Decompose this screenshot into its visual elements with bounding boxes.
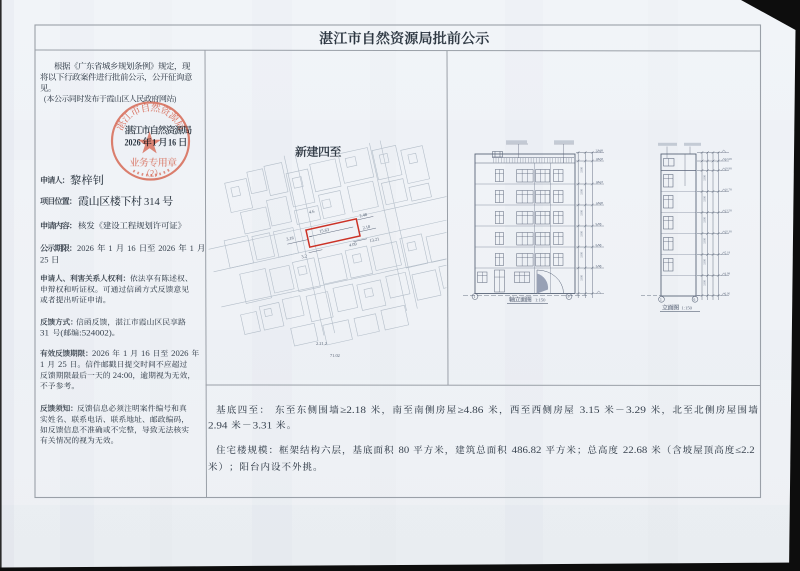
svg-text:(: (: [44, 95, 47, 104]
svg-text:2026: 2026: [171, 348, 188, 358]
svg-text:16.18: 16.18: [596, 180, 604, 184]
svg-text:22.68: 22.68: [623, 446, 648, 456]
svg-text:6: 6: [694, 298, 696, 302]
svg-text::524002): :524002): [79, 327, 112, 337]
svg-text:2: 2: [150, 169, 154, 179]
svg-text:9.78: 9.78: [596, 222, 602, 226]
svg-text:3.31: 3.31: [253, 421, 273, 431]
svg-text:22.68: 22.68: [596, 149, 604, 153]
svg-text:22.68: 22.68: [725, 157, 733, 161]
svg-text:2026: 2026: [158, 243, 175, 253]
svg-text:3300: 3300: [580, 252, 584, 259]
svg-text:3300: 3300: [703, 175, 707, 182]
svg-text:31: 31: [40, 327, 49, 337]
svg-text:0.00: 0.00: [725, 292, 731, 296]
svg-text:16: 16: [127, 243, 136, 253]
svg-text:16: 16: [168, 138, 176, 149]
svg-text:7.18: 7.18: [725, 251, 731, 255]
svg-text:3.29: 3.29: [626, 406, 646, 416]
svg-text:3300: 3300: [703, 280, 707, 287]
svg-text:3300: 3300: [580, 275, 584, 282]
svg-text:1: 1: [190, 243, 194, 253]
svg-text:1: 1: [123, 348, 127, 358]
svg-text:10.38: 10.38: [725, 230, 733, 234]
svg-text:(: (: [60, 327, 63, 337]
svg-text:3300: 3300: [703, 259, 707, 266]
svg-text:9: 9: [568, 295, 570, 299]
svg-text:): ): [174, 95, 177, 104]
svg-text:71.02: 71.02: [330, 353, 340, 358]
svg-text:16: 16: [141, 348, 150, 358]
svg-text:3.38: 3.38: [596, 264, 602, 268]
svg-text:24:00: 24:00: [113, 370, 133, 380]
svg-text:2.94: 2.94: [208, 421, 228, 431]
svg-text:6.58: 6.58: [596, 243, 602, 247]
svg-text:1:150: 1:150: [682, 306, 693, 311]
svg-text:19.98: 19.98: [725, 167, 733, 171]
svg-text:1: 1: [40, 359, 44, 369]
svg-text:486.82: 486.82: [512, 446, 542, 456]
svg-text:3300: 3300: [703, 238, 707, 245]
svg-text:12.98: 12.98: [596, 201, 604, 205]
svg-text:3300: 3300: [580, 189, 584, 196]
svg-text:3300: 3300: [580, 210, 584, 217]
svg-text:3300: 3300: [580, 231, 584, 238]
svg-text:2026: 2026: [125, 138, 141, 149]
svg-text:80: 80: [399, 446, 410, 456]
svg-text:25: 25: [40, 255, 49, 265]
svg-text:3300: 3300: [703, 196, 707, 203]
svg-text:25: 25: [58, 359, 67, 369]
svg-text:3.15: 3.15: [580, 406, 600, 416]
svg-text:≥4.86: ≥4.86: [458, 406, 484, 416]
svg-text:1: 1: [474, 295, 476, 299]
svg-text:1:150: 1:150: [535, 298, 546, 303]
svg-text:3300: 3300: [580, 167, 584, 174]
svg-text:1: 1: [108, 243, 112, 253]
svg-text:1: 1: [660, 298, 662, 302]
svg-text:≤2.2: ≤2.2: [735, 446, 755, 456]
svg-text:2026: 2026: [92, 348, 109, 358]
svg-text:19.38: 19.38: [596, 157, 604, 161]
svg-text:314: 314: [144, 196, 160, 208]
svg-text:13.58: 13.58: [725, 209, 733, 213]
svg-text:3.98: 3.98: [725, 272, 731, 276]
svg-text:2026: 2026: [77, 243, 94, 253]
svg-text:≥2.18: ≥2.18: [340, 406, 366, 416]
svg-text:16.78: 16.78: [725, 188, 733, 192]
svg-text:3300: 3300: [703, 217, 707, 224]
